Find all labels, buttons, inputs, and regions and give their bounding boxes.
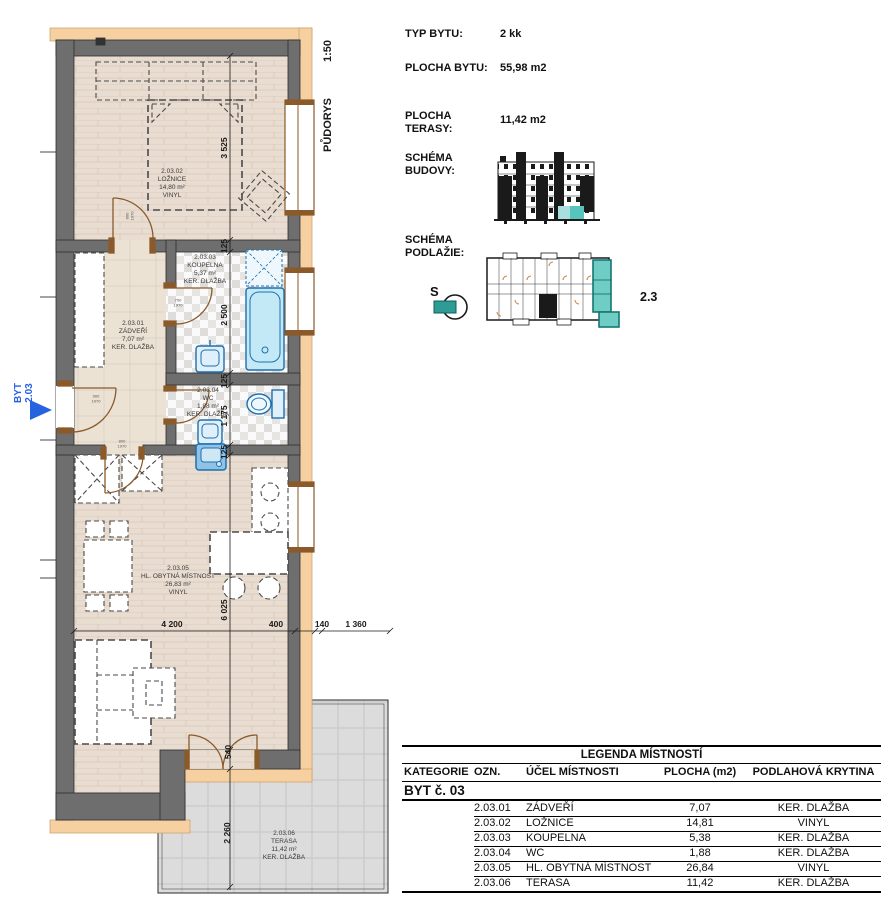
dim-living-width: 4 200 <box>161 619 182 629</box>
schema-budovy-label: SCHÉMA BUDOVY: <box>405 152 497 178</box>
dim-bathroom-height: 2 500 <box>219 304 229 325</box>
dim-living-height: 6 025 <box>219 599 229 620</box>
north-indicator-icon <box>432 294 482 324</box>
col-kategorie: KATEGORIE <box>402 764 474 781</box>
floor-schematic <box>483 250 633 333</box>
floorplan-drawing <box>0 0 400 899</box>
plocha-bytu-value: 55,98 m2 <box>500 62 546 74</box>
room-label-loznice: 2.03.02LOŽNICE 14,80 m²VINYL <box>112 168 232 200</box>
room-label-terasa: 2.03.06TERASA 11,42 m²KER. DLAŽBA <box>224 830 344 862</box>
col-krytina: PODLAHOVÁ KRYTINA <box>746 764 881 781</box>
typ-bytu-value: 2 kk <box>500 28 521 40</box>
door-size-bathroom: 7001970 <box>174 299 183 308</box>
room-label-hlavni: 2.03.05HL. OBYTNÁ MÍSTNOST 26,83 m²VINYL <box>118 565 238 597</box>
dim-terrace-door: 540 <box>223 745 233 759</box>
plocha-terasy-value: 11,42 m2 <box>500 114 546 126</box>
door-size-living: 8001970 <box>118 440 127 449</box>
table-row: 2.03.01 ZÁDVEŘÍ 7,07 KER. DLAŽBA <box>402 801 881 816</box>
col-ucel: ÚČEL MÍSTNOSTI <box>526 764 654 781</box>
legend-group-label: BYT č. 03 <box>402 782 881 801</box>
dim-wall-b: 125 <box>219 374 229 388</box>
room-label-wc: 2.03.04WC 1,88 m²KER. DLAŽBA <box>148 387 268 419</box>
room-label-zadveri: 2.03.01ZÁDVEŘÍ 7,07 m²KER. DLAŽBA <box>73 320 193 352</box>
scale-label: 1:50 <box>322 40 334 62</box>
windows <box>285 100 314 552</box>
legend-title: LEGENDA MÍSTNOSTÍ <box>402 747 881 764</box>
dim-wall-c: 125 <box>219 445 229 459</box>
unit-marker: 2.3 <box>640 290 657 304</box>
drawing-title: PŮDORYS <box>322 98 334 152</box>
legend-header: KATEGORIE OZN. ÚČEL MÍSTNOSTI PLOCHA (m2… <box>402 764 881 782</box>
dim-terrace-width: 1 360 <box>345 619 366 629</box>
plocha-terasy-label: PLOCHA TERASY: <box>405 110 497 136</box>
table-row: 2.03.06 TERASA 11,42 KER. DLAŽBA <box>402 876 881 891</box>
dim-offset-b: 140 <box>315 619 329 629</box>
dim-wall-a: 125 <box>219 239 229 253</box>
col-plocha: PLOCHA (m2) <box>654 764 746 781</box>
dim-wc-height: 1 175 <box>219 405 229 426</box>
building-schematic <box>492 150 602 228</box>
legend-table: LEGENDA MÍSTNOSTÍ KATEGORIE OZN. ÚČEL MÍ… <box>402 745 881 893</box>
table-row: 2.03.03 KOUPELNA 5,38 KER. DLAŽBA <box>402 831 881 846</box>
typ-bytu-label: TYP BYTU: <box>405 28 497 41</box>
toilet <box>272 390 284 418</box>
table-row: 2.03.02 LOŽNICE 14,81 VINYL <box>402 816 881 831</box>
table-row: 2.03.04 WC 1,88 KER. DLAŽBA <box>402 846 881 861</box>
plocha-bytu-label: PLOCHA BYTU: <box>405 62 497 75</box>
floorplan-sheet: BYT 2.03 1:50 PŮDORYS 2.03.02LOŽNICE 14,… <box>0 0 883 899</box>
table-row: 2.03.05 HL. OBYTNÁ MÍSTNOST 26,84 VINYL <box>402 861 881 876</box>
room-label-koupelna: 2.03.03KOUPELNA 5,37 m²KER. DLAŽBA <box>145 254 265 286</box>
entrance-label: BYT 2.03 <box>13 371 35 415</box>
door-size-bedroom: 8001970 <box>126 212 135 221</box>
col-ozn: OZN. <box>474 764 526 781</box>
entrance-opening <box>56 386 74 428</box>
door-size-entrance: 9001970 <box>92 395 101 404</box>
dim-bedroom-height: 3 525 <box>219 137 229 158</box>
dim-offset-a: 400 <box>269 619 283 629</box>
dim-terrace-depth: 2 260 <box>222 822 232 843</box>
